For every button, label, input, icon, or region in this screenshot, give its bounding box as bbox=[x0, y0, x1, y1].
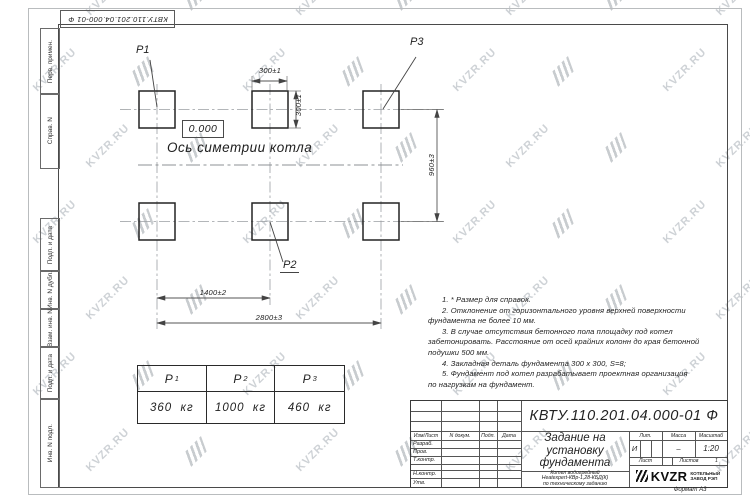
list-label: Лист bbox=[629, 457, 662, 465]
margin-box-podp-data-2: Подп. и дата bbox=[40, 346, 60, 400]
listov-label: Листов bbox=[672, 457, 706, 465]
margin-box-inv-n-dubl: Инв. N дубл. bbox=[40, 270, 60, 310]
col-header-izm-list: Изм/Лист bbox=[411, 431, 441, 440]
margin-box-vzam-inv-n: Взам. инв. N bbox=[40, 308, 60, 348]
col-header-podp: Подп. bbox=[479, 431, 497, 440]
note-line: забетонировать. Расстояние от осей крайн… bbox=[428, 337, 730, 348]
dim-overall: 2800±3 bbox=[239, 313, 299, 322]
axis-of-symmetry-label: Ось симетрии котла bbox=[167, 140, 312, 155]
margin-label: Инв. N дубл. bbox=[47, 271, 54, 309]
note-line: 3. В случае отсутствия бетонного пола пл… bbox=[428, 327, 730, 338]
row-label-utv: Утв. bbox=[411, 478, 443, 487]
margin-label: Подп. и дата bbox=[47, 354, 54, 392]
drawing-title: Задание на установку фундамента bbox=[521, 431, 629, 471]
company-logo: KVZR КОТЕЛЬНЫЙ ЗАВОД РЭП bbox=[629, 465, 727, 487]
masshtab-value: 1:20 bbox=[695, 440, 727, 457]
point-label-p1: P1 bbox=[136, 44, 149, 56]
note-line: 5. Фундамент под котел разрабатывает про… bbox=[428, 369, 730, 380]
row-label-tkontr: Т.контр. bbox=[411, 456, 443, 464]
load-table-value-p3: 460 кг bbox=[275, 392, 344, 423]
product-name: Котел водогрейный Heatexpert-КВр-1,28-КБ… bbox=[521, 471, 629, 487]
listov-value: 1 bbox=[706, 457, 727, 465]
margin-label: Подп. и дата bbox=[47, 226, 54, 264]
margin-label: Взам. инв. N bbox=[47, 309, 54, 347]
elevation-value: 0.000 bbox=[189, 123, 218, 135]
dim-pad-height: 300±1 bbox=[294, 86, 303, 124]
note-line: подушки 500 мм. bbox=[428, 348, 730, 359]
row-label-razrab: Разраб. bbox=[411, 440, 443, 448]
title-block: КВТУ.110.201.04.000-01 Ф Изм/Лист N доку… bbox=[410, 400, 728, 488]
lit-header: Лит. bbox=[629, 431, 662, 440]
leader-p2 bbox=[270, 222, 283, 262]
row-label-prov: Пров. bbox=[411, 448, 443, 456]
margin-box-podp-data-1: Подп. и дата bbox=[40, 218, 60, 272]
row-label-nkontr: Н.контр. bbox=[411, 470, 443, 478]
margin-label: Инв. N подл. bbox=[47, 424, 54, 462]
note-line: 2. Отклонение от горизонтального уровня … bbox=[428, 306, 730, 317]
elevation-mark: 0.000 bbox=[182, 120, 224, 138]
leader-p1 bbox=[150, 60, 157, 107]
format-label: Формат А3 bbox=[655, 487, 725, 493]
col-header-data: Дата bbox=[497, 431, 521, 440]
dim-pad-width: 300±1 bbox=[250, 66, 290, 75]
margin-box-sprav-n: Справ. N bbox=[40, 93, 60, 169]
massa-header: Масса bbox=[662, 431, 695, 440]
kvzr-logo-icon bbox=[636, 470, 648, 482]
load-table-header-p2: P2 bbox=[207, 366, 276, 392]
margin-label: Справ. N bbox=[47, 117, 54, 144]
dim-row-pitch: 960±3 bbox=[427, 143, 436, 187]
margin-box-perv-primen: Перв. примен. bbox=[40, 28, 60, 95]
margin-box-inv-n-podl: Инв. N подл. bbox=[40, 398, 60, 488]
point-label-p3: P3 bbox=[410, 36, 423, 48]
load-table-header-p1: P1 bbox=[138, 366, 207, 392]
masshtab-header: Масштаб bbox=[695, 431, 727, 440]
load-table-value-p1: 360 кг bbox=[138, 392, 207, 423]
company-name: КОТЕЛЬНЫЙ ЗАВОД РЭП bbox=[690, 471, 720, 482]
point-label-p2: P2 bbox=[280, 259, 299, 273]
note-line: 1. * Размер для справок. bbox=[428, 295, 730, 306]
margin-label: Перв. примен. bbox=[47, 40, 54, 83]
load-table: P1 P2 P3 360 кг 1000 кг 460 кг bbox=[137, 365, 345, 424]
col-header-n-dokum: N докум. bbox=[441, 431, 479, 440]
technical-notes: 1. * Размер для справок. 2. Отклонение о… bbox=[428, 295, 730, 390]
top-doc-number: КВТУ.110.201.04.000-01 Ф bbox=[68, 15, 168, 24]
kvzr-logo-text: KVZR bbox=[651, 469, 688, 484]
drawing-sheet: KVZR.RUKVZR.RUKVZR.RUKVZR.RUKVZR.RUKVZR.… bbox=[0, 0, 750, 500]
dim-col-pitch: 1400±2 bbox=[183, 288, 243, 297]
note-line: фундамента не более 10 мм. bbox=[428, 316, 730, 327]
title-block-doc-number: КВТУ.110.201.04.000-01 Ф bbox=[521, 401, 727, 431]
lit-value: И bbox=[629, 440, 640, 457]
note-line: по нагрузкам на фундамент. bbox=[428, 380, 730, 391]
load-table-header-p3: P3 bbox=[275, 366, 344, 392]
massa-value: – bbox=[662, 440, 695, 457]
top-doc-number-box: КВТУ.110.201.04.000-01 Ф bbox=[60, 10, 175, 28]
note-line: 4. Закладная деталь фундамента 300 х 300… bbox=[428, 359, 730, 370]
load-table-value-p2: 1000 кг bbox=[207, 392, 276, 423]
